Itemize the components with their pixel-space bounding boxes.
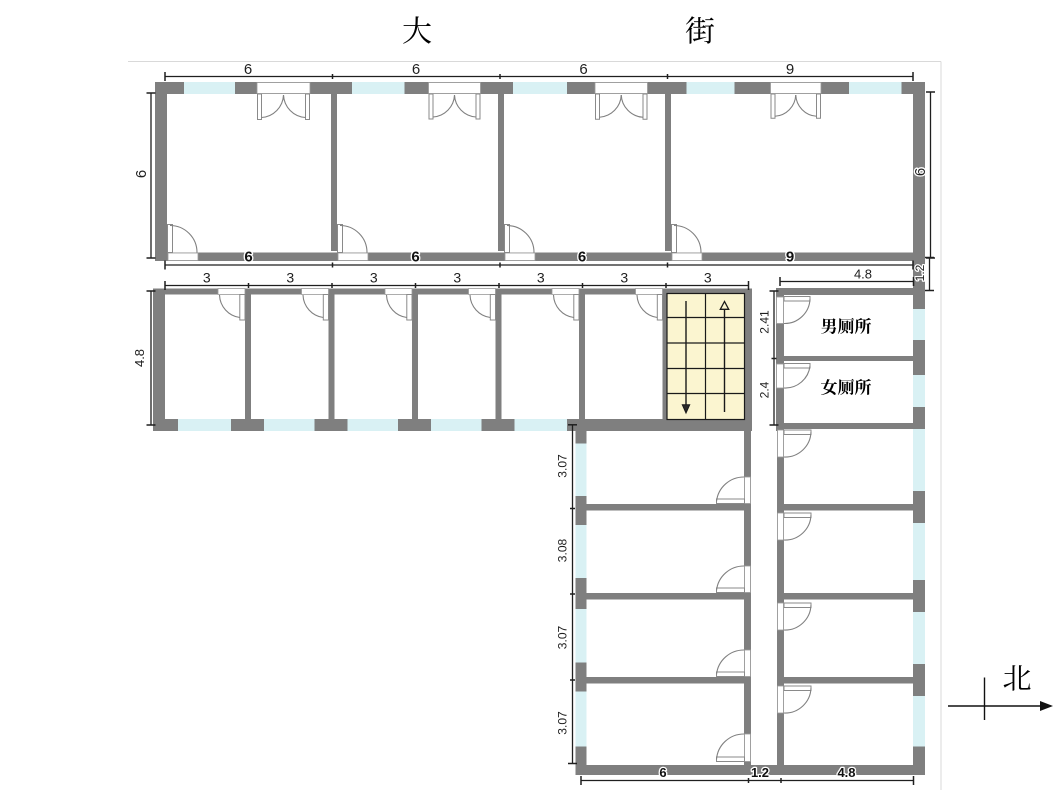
- svg-text:1.2: 1.2: [913, 264, 927, 281]
- svg-text:4.8: 4.8: [837, 765, 855, 780]
- svg-text:2.41: 2.41: [757, 310, 771, 334]
- svg-text:3: 3: [203, 270, 211, 286]
- svg-text:6: 6: [411, 249, 419, 266]
- svg-text:9: 9: [786, 61, 794, 78]
- svg-text:6: 6: [912, 168, 929, 176]
- svg-text:3.07: 3.07: [555, 711, 569, 735]
- svg-text:6: 6: [579, 61, 587, 78]
- svg-text:4.8: 4.8: [132, 349, 147, 367]
- svg-text:3: 3: [370, 270, 378, 286]
- svg-text:3.07: 3.07: [555, 454, 569, 478]
- svg-text:3.08: 3.08: [555, 538, 569, 562]
- svg-text:3: 3: [704, 270, 712, 286]
- svg-text:3.07: 3.07: [555, 625, 569, 649]
- svg-text:6: 6: [578, 249, 586, 266]
- svg-text:6: 6: [244, 61, 252, 78]
- svg-text:6: 6: [659, 765, 666, 780]
- svg-text:6: 6: [133, 170, 150, 178]
- svg-text:3: 3: [620, 270, 628, 286]
- svg-text:3: 3: [286, 270, 294, 286]
- svg-text:6: 6: [412, 61, 420, 78]
- svg-text:3: 3: [453, 270, 461, 286]
- svg-text:3: 3: [537, 270, 545, 286]
- svg-text:9: 9: [786, 249, 794, 266]
- svg-text:1.2: 1.2: [751, 765, 769, 780]
- svg-text:6: 6: [244, 249, 252, 266]
- svg-text:4.8: 4.8: [854, 267, 872, 282]
- svg-text:2.4: 2.4: [757, 381, 771, 398]
